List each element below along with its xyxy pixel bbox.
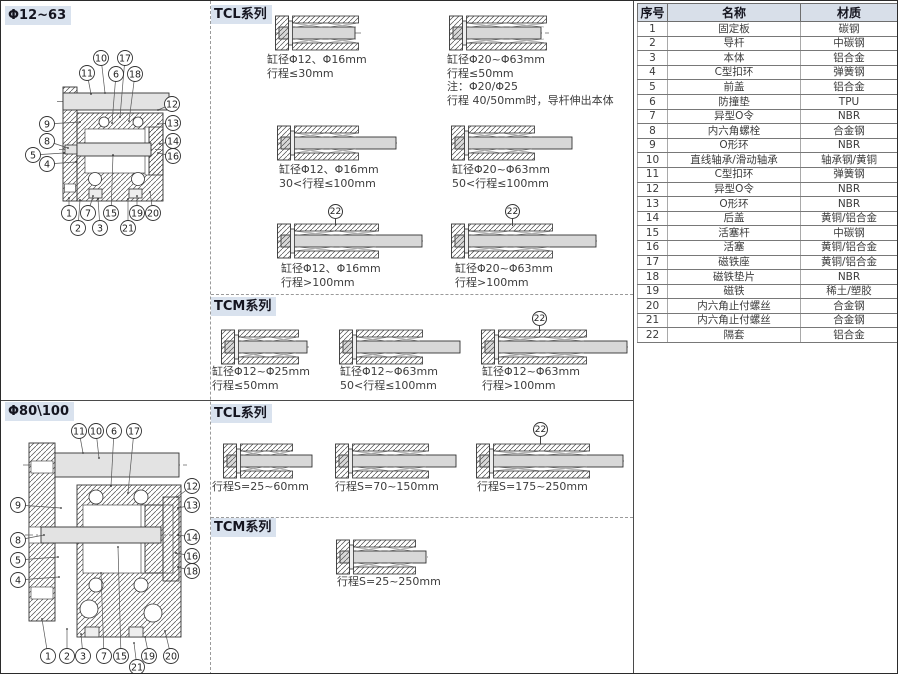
part-callout-number: 13 — [167, 118, 179, 129]
table-cell: 16 — [638, 240, 668, 255]
table-cell: 17 — [638, 255, 668, 270]
figure-caption: 缸径Φ20~Φ63mm 行程>100mm — [455, 262, 553, 289]
table-cell: 弹簧钢 — [801, 167, 898, 182]
cylinder-figure-btcl1 — [223, 439, 314, 483]
cylinder-figure-tcl3 — [277, 121, 398, 165]
part-callout-number: 2 — [75, 223, 81, 234]
cross-section-drawing-80-100: 111061712139814516418123715192021 — [1, 401, 211, 674]
figure-caption: 行程S=25~60mm — [212, 480, 309, 494]
part-callout-number: 11 — [73, 426, 85, 437]
cylinder-figure-btcl2 — [335, 439, 458, 483]
table-row: 13O形环NBR — [638, 197, 898, 212]
part-callout-number: 3 — [97, 223, 103, 234]
table-cell: 中碳钢 — [801, 36, 898, 51]
table-row: 5前盖铝合金 — [638, 80, 898, 95]
part-callout-number: 20 — [147, 208, 159, 219]
table-cell: 前盖 — [668, 80, 801, 95]
table-cell: 直线轴承/滑动轴承 — [668, 153, 801, 168]
part-callout-number: 1 — [66, 208, 72, 219]
table-cell: 铝合金 — [801, 328, 898, 343]
part-callout-number: 7 — [101, 651, 107, 662]
table-row: 22隔套铝合金 — [638, 328, 898, 343]
table-cell: 18 — [638, 270, 668, 285]
table-cell: 稀土/塑胶 — [801, 284, 898, 299]
table-cell: 中碳钢 — [801, 226, 898, 241]
figure-caption: 行程S=175~250mm — [477, 480, 588, 494]
table-cell: 碳钢 — [801, 22, 898, 37]
parts-table-header-row: 序号名称材质 — [638, 4, 898, 22]
table-cell: 14 — [638, 211, 668, 226]
cylinder-figure-btcm1 — [336, 535, 429, 579]
table-cell: 异型O令 — [668, 182, 801, 197]
part-callout-number: 10 — [95, 53, 107, 64]
table-cell: 内六角止付螺丝 — [668, 299, 801, 314]
part-callout-number: 2 — [64, 651, 70, 662]
table-cell: 隔套 — [668, 328, 801, 343]
table-row: 12异型O令NBR — [638, 182, 898, 197]
part-callout-number: 12 — [186, 481, 198, 492]
figure-caption: 缸径Φ12、Φ16mm 30<行程≤100mm — [279, 163, 379, 190]
section-title-tcl-bottom: TCL系列 — [211, 404, 272, 423]
part-callout-number: 9 — [44, 119, 50, 130]
table-cell: 黄铜/铝合金 — [801, 240, 898, 255]
figure-caption: 行程S=25~250mm — [337, 575, 441, 589]
cylinder-figure-tcl6 — [451, 219, 598, 263]
part-callout-number: 16 — [167, 151, 179, 162]
callout-22-bubble: 22 — [532, 311, 547, 326]
table-cell: 防撞垫 — [668, 94, 801, 109]
table-cell: C型扣环 — [668, 65, 801, 80]
table-cell: NBR — [801, 197, 898, 212]
table-cell: 1 — [638, 22, 668, 37]
part-callout-number: 5 — [30, 150, 36, 161]
table-cell: 2 — [638, 36, 668, 51]
cylinder-figure-tcm2 — [339, 325, 462, 369]
table-cell: 合金钢 — [801, 124, 898, 139]
table-row: 14后盖黄铜/铝合金 — [638, 211, 898, 226]
figure-caption: 缸径Φ12~Φ25mm 行程≤50mm — [212, 365, 310, 392]
table-cell: 弹簧钢 — [801, 65, 898, 80]
part-callout-number: 10 — [90, 426, 102, 437]
parts-table-header-cell: 材质 — [801, 4, 898, 22]
cylinder-figure-btcl3 — [476, 439, 625, 483]
table-cell: 磁铁座 — [668, 255, 801, 270]
section-title-tcm-bottom: TCM系列 — [211, 518, 276, 537]
cylinder-figure-tcl4 — [451, 121, 574, 165]
table-cell: 3 — [638, 51, 668, 66]
part-callout-number: 21 — [122, 223, 134, 234]
table-cell: 内六角止付螺丝 — [668, 313, 801, 328]
table-cell: 活塞 — [668, 240, 801, 255]
part-callout-number: 14 — [167, 136, 179, 147]
table-cell: 5 — [638, 80, 668, 95]
callout-22-bubble: 22 — [328, 204, 343, 219]
table-row: 19磁铁稀土/塑胶 — [638, 284, 898, 299]
figure-caption: 缸径Φ12~Φ63mm 行程>100mm — [482, 365, 580, 392]
table-row: 2导杆中碳钢 — [638, 36, 898, 51]
part-callout-number: 21 — [131, 662, 143, 673]
figure-caption: 缸径Φ12~Φ63mm 50<行程≤100mm — [340, 365, 438, 392]
table-row: 3本体铝合金 — [638, 51, 898, 66]
table-cell: 本体 — [668, 51, 801, 66]
table-row: 6防撞垫TPU — [638, 94, 898, 109]
section-title-tcl-top: TCL系列 — [211, 5, 272, 24]
part-callout-number: 4 — [44, 159, 50, 170]
part-callout-number: 8 — [15, 535, 21, 546]
part-callout-number: 3 — [80, 651, 86, 662]
cylinder-figure-tcl2 — [449, 11, 550, 55]
table-cell: NBR — [801, 109, 898, 124]
section-title-tcm-top: TCM系列 — [211, 297, 276, 316]
part-callout-number: 18 — [129, 69, 141, 80]
table-row: 9O形环NBR — [638, 138, 898, 153]
table-cell: 20 — [638, 299, 668, 314]
table-cell: 铝合金 — [801, 80, 898, 95]
table-row: 11C型扣环弹簧钢 — [638, 167, 898, 182]
table-cell: 10 — [638, 153, 668, 168]
callout-22-bubble: 22 — [505, 204, 520, 219]
divider-vertical-solid — [633, 1, 634, 674]
part-callout-number: 20 — [165, 651, 177, 662]
part-callout-number: 17 — [119, 53, 131, 64]
table-cell: 12 — [638, 182, 668, 197]
table-cell: 6 — [638, 94, 668, 109]
table-cell: NBR — [801, 182, 898, 197]
figure-caption: 缸径Φ12、Φ16mm 行程>100mm — [281, 262, 381, 289]
table-row: 1固定板碳钢 — [638, 22, 898, 37]
table-cell: 黄铜/铝合金 — [801, 211, 898, 226]
figure-caption: 缸径Φ12、Φ16mm 行程≤30mm — [267, 53, 367, 80]
divider-horizontal-dashed-top — [211, 294, 633, 295]
table-cell: 11 — [638, 167, 668, 182]
table-cell: 19 — [638, 284, 668, 299]
table-cell: 13 — [638, 197, 668, 212]
table-cell: 内六角螺栓 — [668, 124, 801, 139]
table-cell: 15 — [638, 226, 668, 241]
catalog-page: Φ12~63 TCL系列 TCM系列 Φ80\100 TCL系列 TCM系列 1… — [0, 0, 898, 674]
table-cell: 8 — [638, 124, 668, 139]
table-cell: 后盖 — [668, 211, 801, 226]
figure-caption: 缸径Φ20~Φ63mm 50<行程≤100mm — [452, 163, 550, 190]
part-callout-number: 15 — [115, 651, 127, 662]
parts-table-header-cell: 名称 — [668, 4, 801, 22]
table-cell: 活塞杆 — [668, 226, 801, 241]
cylinder-figure-tcm1 — [221, 325, 310, 369]
table-cell: 轴承钢/黄铜 — [801, 153, 898, 168]
part-callout-number: 13 — [186, 500, 198, 511]
cross-section-drawing-12-63: 101711618129138145164171519202321 — [1, 1, 211, 251]
cylinder-figure-tcl1 — [275, 11, 362, 55]
callout-22-bubble: 22 — [533, 422, 548, 437]
table-cell: 21 — [638, 313, 668, 328]
part-callout-number: 12 — [166, 99, 178, 110]
table-cell: 导杆 — [668, 36, 801, 51]
table-cell: 固定板 — [668, 22, 801, 37]
parts-table-header-cell: 序号 — [638, 4, 668, 22]
table-cell: 异型O令 — [668, 109, 801, 124]
table-row: 21内六角止付螺丝合金钢 — [638, 313, 898, 328]
table-row: 8内六角螺栓合金钢 — [638, 124, 898, 139]
part-callout-number: 14 — [186, 532, 198, 543]
table-cell: NBR — [801, 138, 898, 153]
part-callout-number: 16 — [186, 551, 198, 562]
table-row: 4C型扣环弹簧钢 — [638, 65, 898, 80]
part-callout-number: 7 — [85, 208, 91, 219]
table-cell: 7 — [638, 109, 668, 124]
figure-caption: 缸径Φ20~Φ63mm 行程≤50mm 注：Φ20/Φ25 行程 40/50mm… — [447, 53, 614, 107]
table-cell: O形环 — [668, 138, 801, 153]
table-cell: O形环 — [668, 197, 801, 212]
part-callout-number: 15 — [105, 208, 117, 219]
table-cell: 磁铁垫片 — [668, 270, 801, 285]
table-cell: 合金钢 — [801, 299, 898, 314]
part-callout-number: 4 — [15, 575, 21, 586]
table-row: 18磁铁垫片NBR — [638, 270, 898, 285]
table-cell: 铝合金 — [801, 51, 898, 66]
part-callout-number: 6 — [111, 426, 117, 437]
table-row: 17磁铁座黄铜/铝合金 — [638, 255, 898, 270]
table-cell: TPU — [801, 94, 898, 109]
table-cell: 黄铜/铝合金 — [801, 255, 898, 270]
table-cell: 4 — [638, 65, 668, 80]
part-callout-number: 18 — [186, 566, 198, 577]
table-row: 16活塞黄铜/铝合金 — [638, 240, 898, 255]
part-callout-number: 17 — [128, 426, 140, 437]
part-callout-number: 19 — [131, 208, 143, 219]
cylinder-figure-tcl5 — [277, 219, 424, 263]
part-callout-number: 8 — [44, 136, 50, 147]
table-row: 10直线轴承/滑动轴承轴承钢/黄铜 — [638, 153, 898, 168]
table-row: 7异型O令NBR — [638, 109, 898, 124]
table-cell: 22 — [638, 328, 668, 343]
part-callout-number: 5 — [15, 555, 21, 566]
table-cell: 合金钢 — [801, 313, 898, 328]
table-cell: 9 — [638, 138, 668, 153]
parts-table: 序号名称材质 1固定板碳钢2导杆中碳钢3本体铝合金4C型扣环弹簧钢5前盖铝合金6… — [637, 3, 898, 343]
table-cell: C型扣环 — [668, 167, 801, 182]
part-callout-number: 11 — [81, 68, 93, 79]
part-callout-number: 6 — [113, 69, 119, 80]
cylinder-figure-tcm3 — [481, 325, 629, 369]
table-cell: 磁铁 — [668, 284, 801, 299]
table-row: 15活塞杆中碳钢 — [638, 226, 898, 241]
part-callout-number: 1 — [45, 651, 51, 662]
figure-caption: 行程S=70~150mm — [335, 480, 439, 494]
table-row: 20内六角止付螺丝合金钢 — [638, 299, 898, 314]
table-cell: NBR — [801, 270, 898, 285]
part-callout-number: 19 — [143, 651, 155, 662]
part-callout-number: 9 — [15, 500, 21, 511]
